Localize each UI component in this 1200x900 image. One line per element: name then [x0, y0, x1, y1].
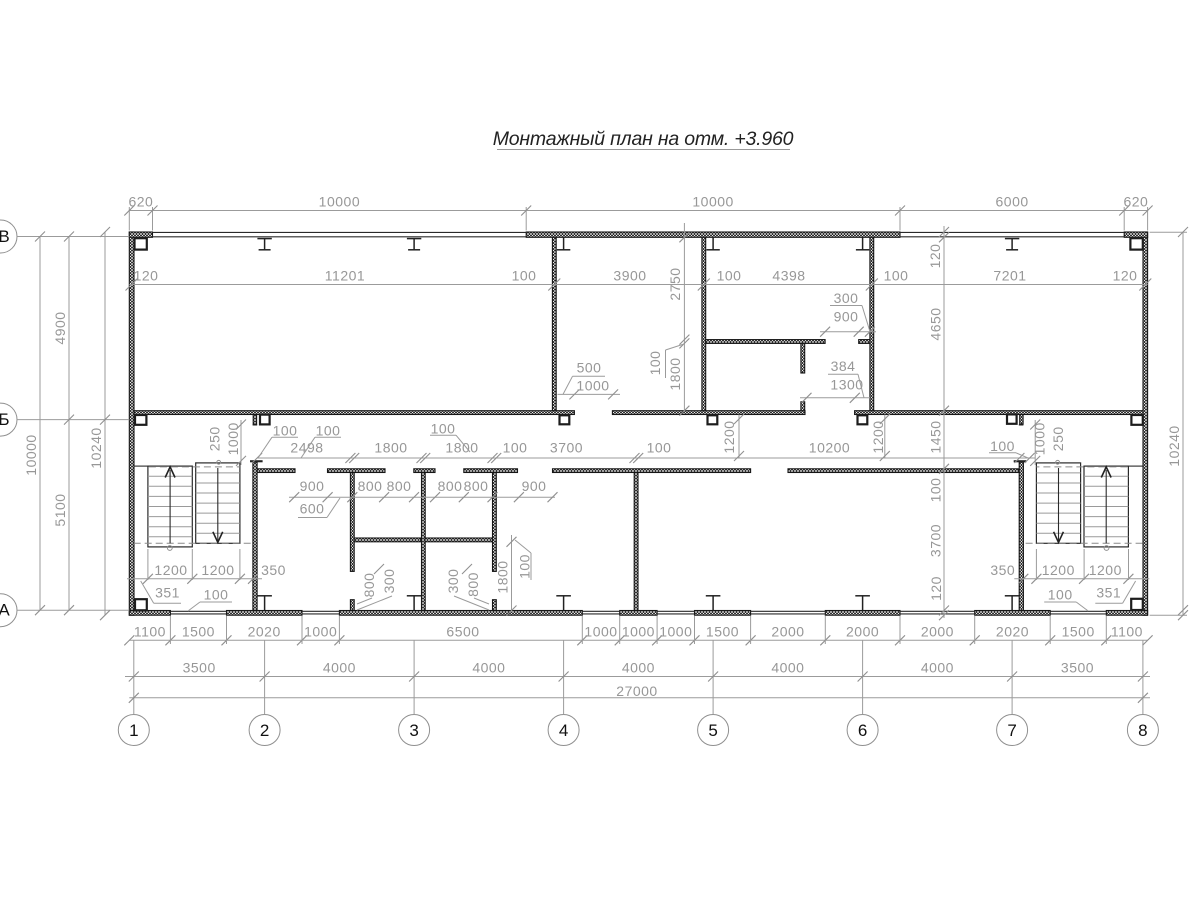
svg-text:10000: 10000	[23, 434, 39, 475]
svg-text:120: 120	[134, 268, 159, 284]
svg-text:Монтажный план на отм. +3.960: Монтажный план на отм. +3.960	[493, 128, 794, 150]
svg-text:120: 120	[927, 244, 943, 269]
svg-text:620: 620	[1123, 194, 1148, 210]
svg-text:2000: 2000	[846, 623, 879, 639]
svg-text:1000: 1000	[576, 378, 609, 394]
svg-text:2000: 2000	[921, 623, 954, 639]
svg-text:100: 100	[990, 438, 1015, 454]
svg-text:10000: 10000	[319, 194, 360, 210]
svg-text:1450: 1450	[927, 420, 943, 453]
svg-text:2020: 2020	[248, 623, 281, 639]
svg-text:1500: 1500	[706, 623, 739, 639]
svg-text:351: 351	[155, 585, 180, 601]
svg-text:800: 800	[438, 478, 463, 494]
svg-text:620: 620	[128, 194, 153, 210]
svg-text:1200: 1200	[1042, 562, 1075, 578]
svg-text:1300: 1300	[830, 377, 863, 393]
svg-text:100: 100	[647, 351, 663, 376]
svg-text:11201: 11201	[325, 268, 365, 284]
svg-text:800: 800	[464, 478, 489, 494]
svg-text:100: 100	[316, 423, 341, 439]
svg-text:4000: 4000	[323, 659, 356, 675]
svg-text:100: 100	[431, 421, 456, 437]
svg-text:8: 8	[1138, 721, 1147, 740]
svg-text:350: 350	[990, 562, 1015, 578]
svg-text:100: 100	[512, 268, 537, 284]
svg-text:250: 250	[1050, 426, 1066, 451]
svg-text:100: 100	[647, 440, 672, 456]
svg-text:4000: 4000	[921, 659, 954, 675]
svg-text:2498: 2498	[290, 440, 323, 456]
svg-text:1200: 1200	[721, 420, 737, 453]
svg-text:3700: 3700	[550, 440, 583, 456]
svg-text:5: 5	[708, 721, 717, 740]
svg-text:6000: 6000	[996, 194, 1029, 210]
svg-text:1200: 1200	[1089, 562, 1122, 578]
svg-text:1500: 1500	[182, 623, 215, 639]
svg-text:4650: 4650	[928, 307, 944, 340]
svg-text:3900: 3900	[613, 268, 646, 284]
svg-text:120: 120	[1113, 268, 1138, 284]
svg-text:3700: 3700	[928, 524, 944, 557]
svg-text:800: 800	[465, 572, 481, 597]
svg-text:1200: 1200	[201, 562, 234, 578]
svg-text:3: 3	[409, 721, 418, 740]
svg-text:300: 300	[834, 290, 859, 306]
svg-text:351: 351	[1096, 585, 1121, 601]
svg-text:2000: 2000	[771, 623, 804, 639]
svg-text:2020: 2020	[996, 623, 1029, 639]
svg-text:100: 100	[927, 478, 943, 503]
svg-text:1000: 1000	[584, 623, 617, 639]
svg-text:100: 100	[884, 268, 909, 284]
svg-text:100: 100	[1048, 587, 1073, 603]
svg-text:6500: 6500	[446, 623, 479, 639]
svg-text:100: 100	[204, 587, 229, 603]
svg-text:100: 100	[717, 268, 742, 284]
svg-text:900: 900	[300, 478, 325, 494]
svg-text:900: 900	[834, 309, 859, 325]
svg-text:1800: 1800	[495, 560, 511, 593]
svg-text:1000: 1000	[659, 623, 692, 639]
svg-text:100: 100	[273, 423, 298, 439]
svg-text:6: 6	[858, 721, 867, 740]
svg-text:5100: 5100	[52, 493, 68, 526]
svg-text:800: 800	[361, 573, 377, 598]
svg-text:3500: 3500	[183, 659, 216, 675]
svg-text:250: 250	[207, 426, 223, 451]
svg-text:7201: 7201	[993, 268, 1026, 284]
svg-text:10000: 10000	[692, 194, 733, 210]
svg-text:120: 120	[928, 576, 944, 601]
svg-text:10240: 10240	[88, 427, 104, 468]
svg-text:350: 350	[261, 562, 286, 578]
svg-text:1100: 1100	[1111, 623, 1143, 639]
svg-text:4900: 4900	[52, 311, 68, 344]
svg-text:1: 1	[129, 721, 138, 740]
svg-text:1000: 1000	[304, 623, 337, 639]
svg-text:1800: 1800	[374, 440, 407, 456]
svg-text:3500: 3500	[1061, 659, 1094, 675]
svg-text:384: 384	[831, 358, 856, 374]
svg-text:10240: 10240	[1166, 425, 1182, 466]
svg-text:А: А	[0, 601, 10, 620]
svg-text:2750: 2750	[667, 267, 683, 300]
svg-text:1100: 1100	[134, 623, 166, 639]
svg-text:Б: Б	[0, 410, 10, 429]
svg-text:300: 300	[381, 569, 397, 594]
svg-text:1000: 1000	[622, 623, 655, 639]
svg-text:2: 2	[260, 721, 269, 740]
svg-text:В: В	[0, 227, 10, 246]
svg-text:600: 600	[300, 501, 325, 517]
svg-text:100: 100	[517, 554, 533, 579]
svg-text:4000: 4000	[472, 659, 505, 675]
svg-text:800: 800	[387, 478, 412, 494]
svg-text:1000: 1000	[1032, 422, 1048, 455]
svg-text:4398: 4398	[772, 268, 805, 284]
svg-text:4000: 4000	[771, 659, 804, 675]
svg-text:500: 500	[577, 360, 602, 376]
svg-text:1200: 1200	[870, 420, 886, 453]
svg-text:800: 800	[358, 478, 383, 494]
svg-text:1200: 1200	[154, 562, 187, 578]
svg-text:7: 7	[1007, 721, 1016, 740]
svg-text:1000: 1000	[225, 422, 241, 455]
svg-text:27000: 27000	[616, 683, 657, 699]
svg-text:300: 300	[445, 569, 461, 594]
svg-text:4: 4	[559, 721, 568, 740]
svg-text:10200: 10200	[809, 440, 850, 456]
svg-text:4000: 4000	[622, 659, 655, 675]
svg-text:1800: 1800	[667, 357, 683, 390]
svg-text:900: 900	[522, 478, 547, 494]
svg-text:100: 100	[503, 440, 528, 456]
svg-text:1500: 1500	[1062, 623, 1095, 639]
